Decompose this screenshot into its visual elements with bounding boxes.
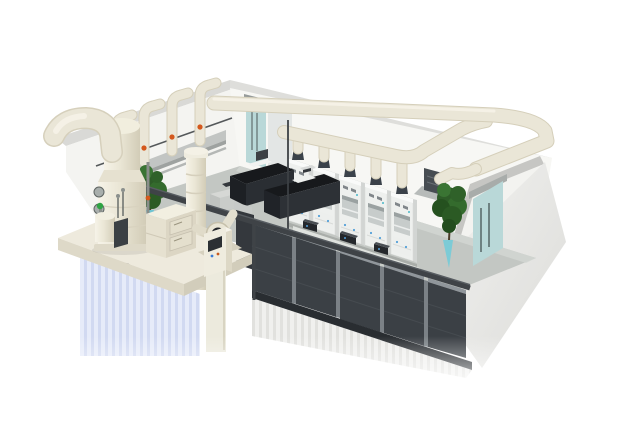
bottom-fade	[40, 336, 585, 400]
control-panel: control panel	[204, 227, 232, 352]
lab-3d-render: laboratory room shell exterior walls lab…	[0, 0, 640, 425]
fume-hood	[391, 192, 417, 263]
tower-gauge	[94, 187, 104, 197]
lab-scene: laboratory room shell exterior walls lab…	[0, 0, 640, 425]
